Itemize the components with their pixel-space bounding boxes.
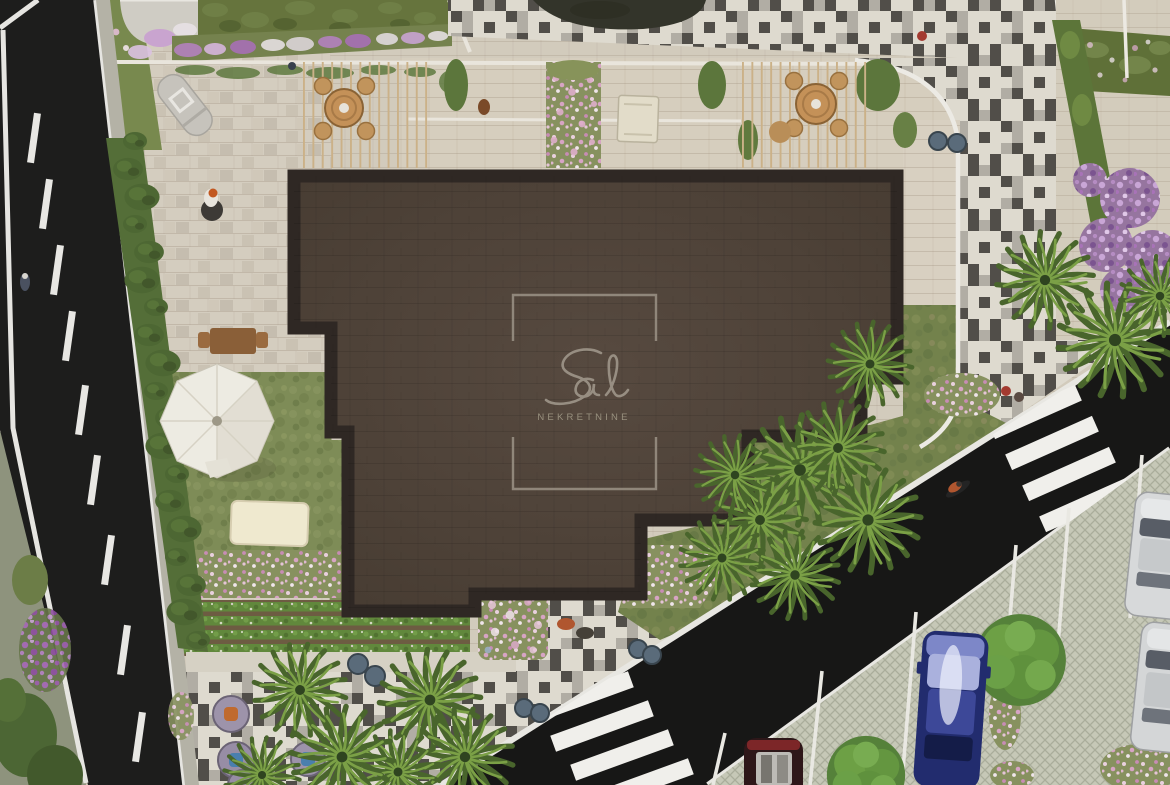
svg-text:NEKRETNINE: NEKRETNINE <box>537 412 630 423</box>
